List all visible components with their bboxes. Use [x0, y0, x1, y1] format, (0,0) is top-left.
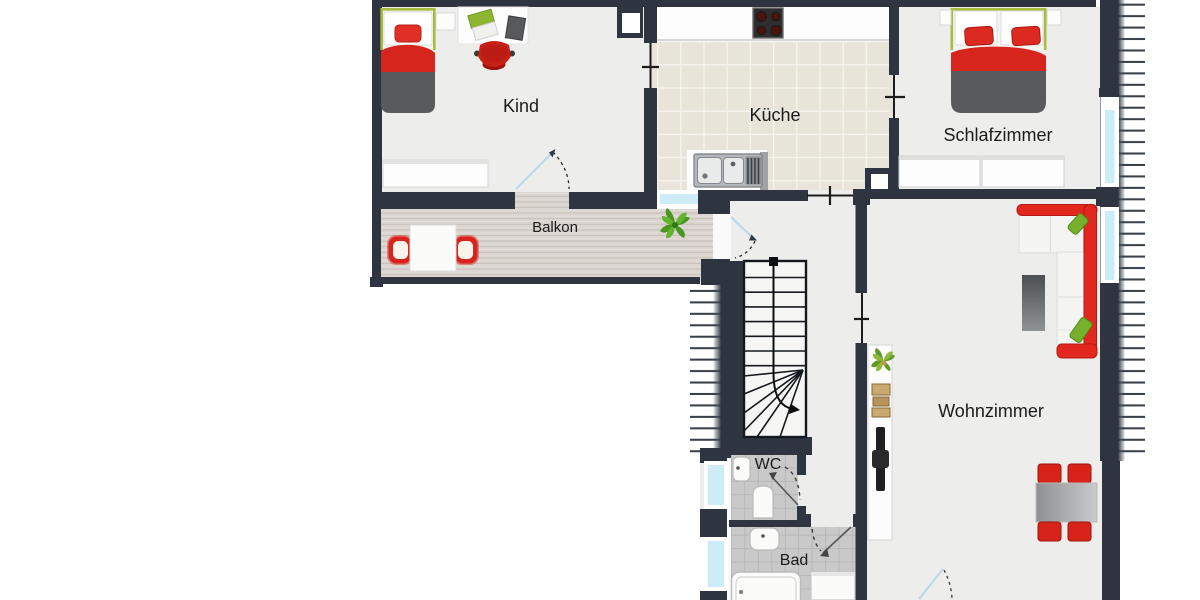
svg-text:Bad: Bad	[780, 552, 808, 569]
svg-text:Schlafzimmer: Schlafzimmer	[943, 125, 1052, 145]
svg-text:Wohnzimmer: Wohnzimmer	[938, 401, 1044, 421]
svg-text:WC: WC	[755, 456, 782, 473]
svg-text:Balkon: Balkon	[532, 219, 578, 236]
svg-text:Küche: Küche	[749, 105, 800, 125]
svg-text:Kind: Kind	[503, 96, 539, 116]
